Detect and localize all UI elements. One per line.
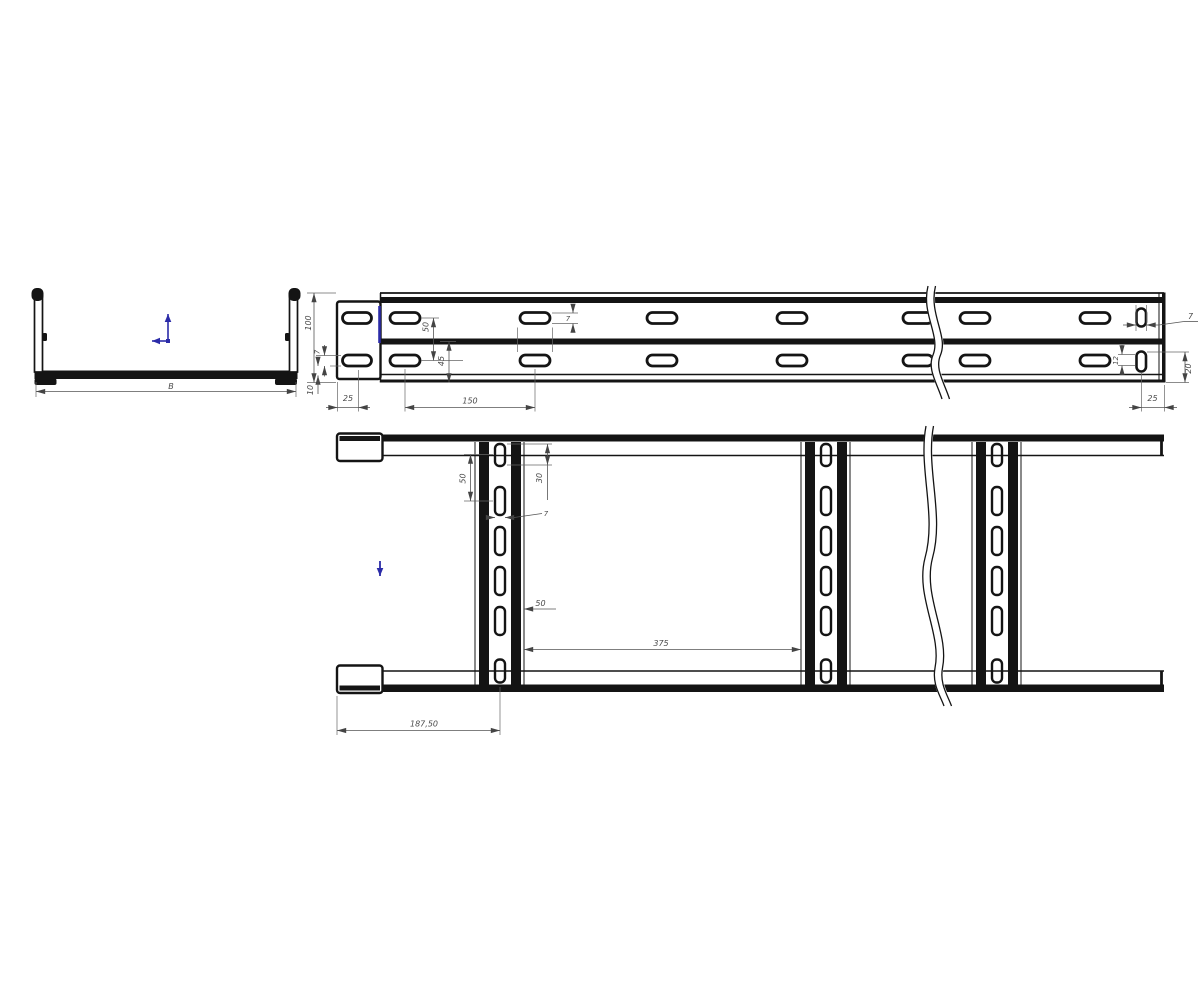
dim-slot-height-7: 7 <box>566 315 571 323</box>
slot <box>1080 313 1110 324</box>
slot <box>1080 355 1110 366</box>
dim-slot-width-7: 7 <box>544 510 549 518</box>
slot <box>390 313 420 324</box>
dim-rung-pitch-375: 375 <box>653 639 668 648</box>
slot <box>821 567 831 595</box>
dim-row-spacing-50: 50 <box>422 322 431 332</box>
rail-mid-fold <box>380 339 1164 345</box>
tray-bead-right <box>289 288 301 301</box>
origin-axes-icon <box>152 314 170 343</box>
dim-first-rung-offset: 187,50 <box>410 720 438 729</box>
drawing-canvas: B <box>0 0 1200 1000</box>
end-coupler <box>337 302 381 380</box>
tray-bead-left <box>32 288 44 301</box>
end-hole-top <box>1137 309 1147 327</box>
rung-1 <box>475 442 524 685</box>
plan-break-line <box>923 426 952 706</box>
dim-pitch-150: 150 <box>462 397 477 406</box>
dim-width-label: B <box>168 382 174 391</box>
slot <box>960 313 990 324</box>
side-elevation-view: 100 50 45 7 7 <box>304 286 1198 412</box>
rung-2 <box>801 442 850 685</box>
slot <box>992 527 1002 555</box>
dim-end-25: 25 <box>1147 394 1157 403</box>
rail-right-end <box>1162 293 1166 383</box>
slot <box>647 313 677 324</box>
side-top-slot-row <box>390 313 1110 324</box>
slot <box>495 567 505 595</box>
wall-bump-left <box>43 333 48 341</box>
end-hole-bottom <box>1137 352 1147 372</box>
dim-bottom-10: 10 <box>306 385 315 395</box>
slot <box>343 355 372 366</box>
slot <box>520 313 550 324</box>
dim-end-hole-20: 20 <box>1184 363 1193 373</box>
wall-bump-right <box>285 333 290 341</box>
slot <box>992 567 1002 595</box>
technical-drawing: B <box>0 0 1200 1000</box>
slot <box>495 527 505 555</box>
slot <box>777 313 807 324</box>
slot <box>903 355 933 366</box>
plan-view: 50 30 7 50 375 187,50 <box>337 426 1164 735</box>
slot <box>821 527 831 555</box>
dim-slot-edge-7: 7 <box>314 349 322 354</box>
slot <box>495 487 505 515</box>
dim-flange-45: 45 <box>437 356 446 366</box>
plan-end-cap-top <box>337 434 383 462</box>
plan-end-cap-bottom <box>337 666 383 694</box>
dim-end-hole-7: 7 <box>1188 312 1194 321</box>
dim-width-B: B <box>36 382 296 397</box>
dim-rung-width-50: 50 <box>535 599 545 608</box>
slot <box>647 355 677 366</box>
slot <box>821 607 831 635</box>
dim-slot-spacing-50: 50 <box>459 473 468 483</box>
dim-cap-25: 25 <box>343 394 353 403</box>
slot <box>960 355 990 366</box>
dim-slot-length-30: 30 <box>535 473 544 483</box>
slot <box>390 355 420 366</box>
rail-bottom-edge <box>380 380 1164 383</box>
plan-rail-bottom-edge <box>380 685 1164 693</box>
dim-height-100: 100 <box>304 315 313 330</box>
plan-rail-top-edge <box>380 435 1164 442</box>
tray-foot-left <box>35 379 57 386</box>
end-section-view: B <box>32 288 301 397</box>
slot <box>520 355 550 366</box>
slot <box>821 487 831 515</box>
rung-3 <box>972 442 1021 685</box>
slot <box>495 607 505 635</box>
tray-base <box>35 371 298 380</box>
slot <box>992 487 1002 515</box>
side-bottom-slot-row <box>390 355 1110 366</box>
tray-foot-right <box>275 379 297 386</box>
slot <box>992 607 1002 635</box>
side-dimensions: 100 50 45 7 7 <box>304 293 1198 412</box>
rail-top-flange <box>380 297 1164 303</box>
tray-wall-right <box>290 294 298 372</box>
dim-end-hole-12: 12 <box>1112 356 1120 365</box>
slot <box>343 313 372 324</box>
tray-wall-left <box>35 294 43 372</box>
slot <box>777 355 807 366</box>
